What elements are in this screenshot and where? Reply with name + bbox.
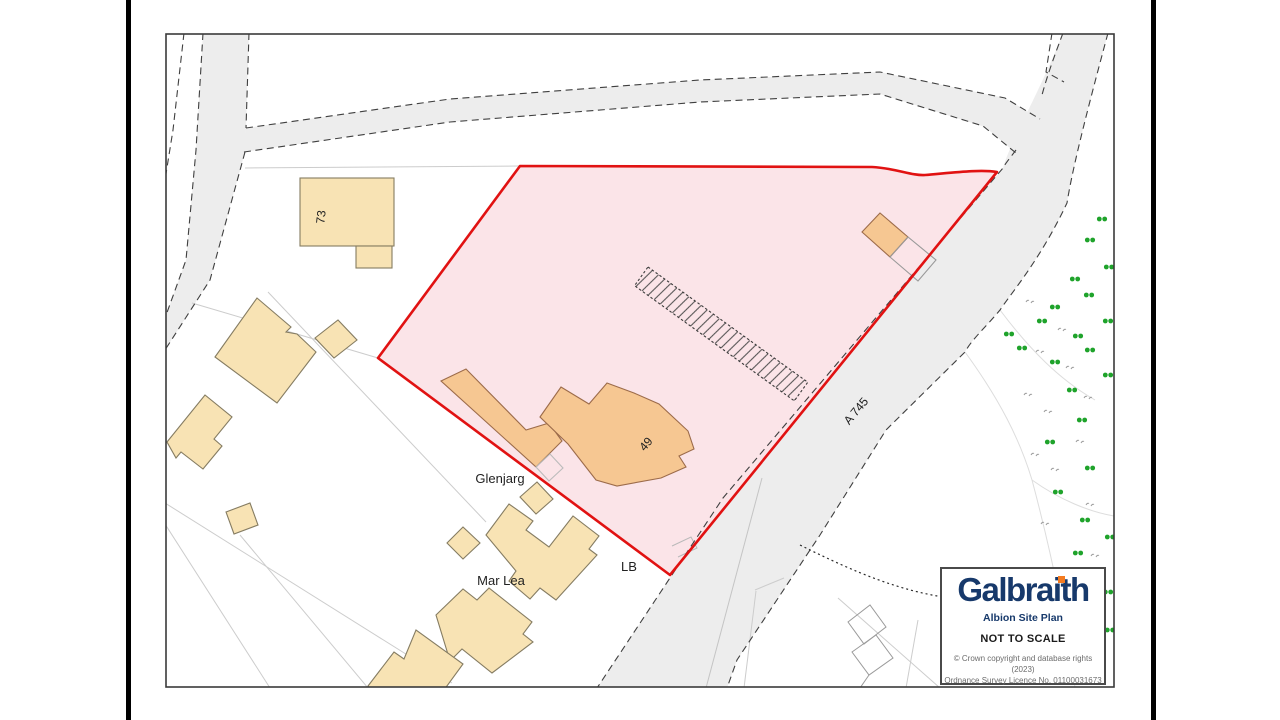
scale-note: NOT TO SCALE xyxy=(980,633,1065,645)
label-building-73: 73 xyxy=(313,209,328,224)
brand-logo-text: Galbraith xyxy=(957,571,1088,608)
label-lb: LB xyxy=(621,559,637,574)
legend-box: Galbraith Albion Site Plan NOT TO SCALE … xyxy=(940,567,1106,685)
label-glenjarg: Glenjarg xyxy=(475,471,524,486)
copyright-line-1: © Crown copyright and database rights (2… xyxy=(942,653,1104,675)
brand-logo: Galbraith xyxy=(957,573,1088,606)
copyright-text: © Crown copyright and database rights (2… xyxy=(942,653,1104,687)
brand-i-dot xyxy=(1058,576,1065,583)
screenshot-stage: 73 49 Glenjarg Mar Lea LB A 745 Galbrait… xyxy=(0,0,1280,720)
plan-title: Albion Site Plan xyxy=(983,612,1063,624)
copyright-line-2: Ordnance Survey Licence No. 01100031673 xyxy=(942,675,1104,686)
label-mar-lea: Mar Lea xyxy=(477,573,525,588)
